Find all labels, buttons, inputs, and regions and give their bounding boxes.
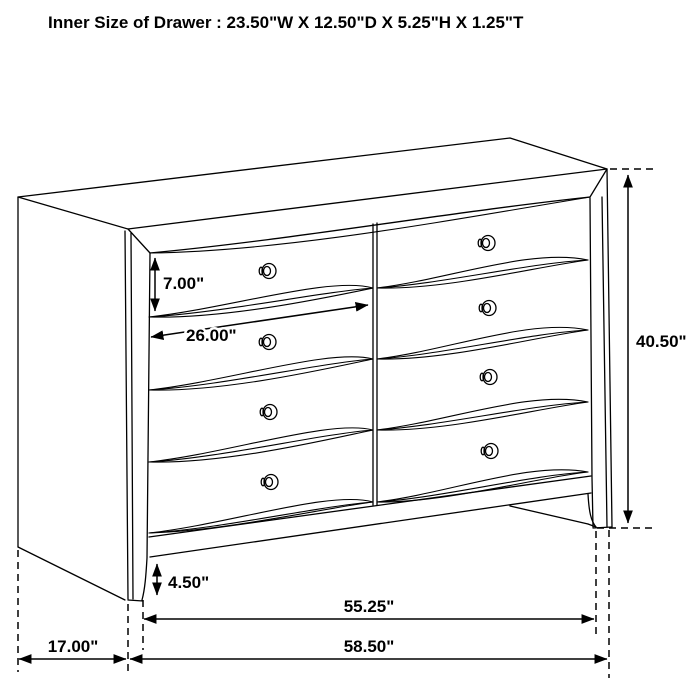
- dimension-label-foot-height: 4.50": [168, 573, 209, 592]
- dimension-label-overall-width: 58.50": [344, 637, 395, 656]
- dresser-dimension-drawing: 7.00" 26.00" 40.50" 4.50" 55.25" 17.00" …: [0, 0, 700, 700]
- drawer-gap-right-4: [377, 470, 588, 502]
- front-left-corner-outer: [125, 231, 128, 599]
- left-stile-edge: [142, 253, 150, 600]
- drawer-knob: [480, 370, 497, 385]
- top-band-curve: [150, 197, 590, 253]
- drawer-knob: [260, 405, 277, 420]
- product-dimension-page: { "page": { "title": "Inner Size of Draw…: [0, 0, 700, 700]
- drawer-gap-left-4: [149, 499, 373, 533]
- drawer-knob: [259, 264, 276, 279]
- dimension-label-drawer-opening-width: 26.00": [186, 326, 237, 345]
- drawer-gap-right-3: [377, 399, 588, 430]
- drawer-gap-left-3: [149, 428, 373, 462]
- dimension-label-overall-height: 40.50": [636, 332, 687, 351]
- drawer-gap-right-2: [377, 327, 588, 359]
- drawer-gap-left-2: [149, 357, 373, 390]
- right-stile-edge: [590, 198, 593, 527]
- dresser-cabinet: [18, 138, 612, 601]
- dimension-label-side-depth: 17.00": [48, 637, 99, 656]
- dimension-label-front-width: 55.25": [344, 597, 395, 616]
- drawer-knobs: [259, 236, 498, 490]
- dimension-label-drawer-face-height: 7.00": [163, 274, 204, 293]
- drawer-gap-right-1: [377, 257, 588, 288]
- drawer-grid: [149, 236, 588, 534]
- drawer-knob: [478, 236, 495, 251]
- dimension-annotations: 7.00" 26.00" 40.50" 4.50" 55.25" 17.00" …: [19, 175, 687, 659]
- drawer-knob: [259, 335, 276, 350]
- drawer-knob: [481, 444, 498, 459]
- extension-lines: [18, 169, 656, 678]
- left-foot-bottom: [128, 600, 143, 601]
- dimension-arrow-drawer-opening-width: [151, 305, 368, 337]
- front-left-corner-inner: [131, 233, 133, 599]
- right-side-edge-inner: [602, 197, 607, 527]
- right-foot-cutout: [510, 506, 588, 524]
- drawer-knob: [479, 301, 496, 316]
- left-side-panel-bottom: [18, 547, 125, 600]
- top-band-right-seam: [590, 169, 607, 197]
- right-side-edge-outer: [607, 169, 612, 527]
- drawer-knob: [261, 475, 278, 490]
- top-surface: [18, 138, 607, 229]
